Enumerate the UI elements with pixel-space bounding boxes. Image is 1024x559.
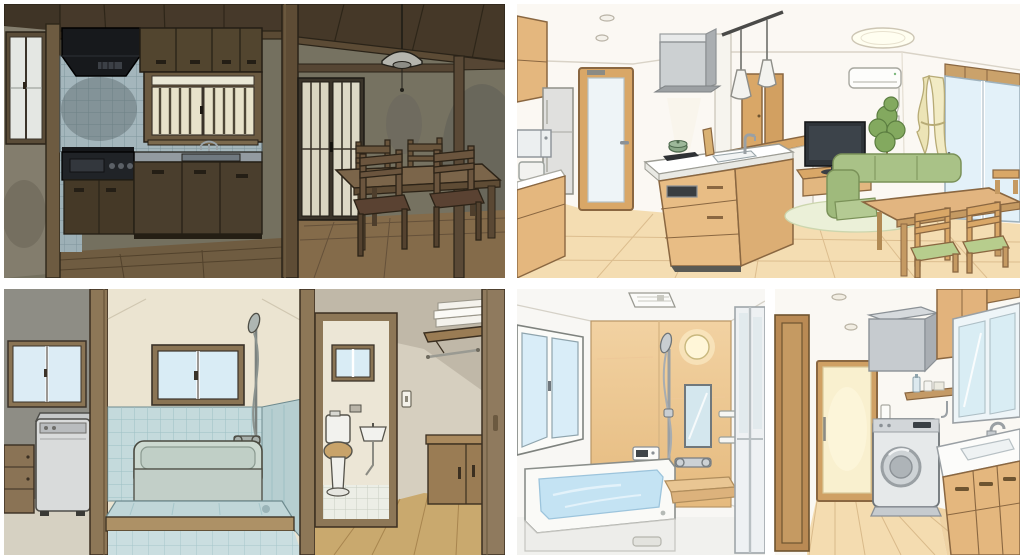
drum-washer [871,419,941,516]
laundry-room [4,289,94,555]
control-panel [633,447,659,460]
door-handle-recess [493,415,498,431]
kitchen-window [144,72,262,145]
panel-modern-ldk [517,4,1020,278]
panel-modern-bathroom [517,289,1020,555]
top-load-washer [36,413,94,516]
bath-window [517,325,583,455]
partition-column [715,34,731,160]
left-exterior-wall [4,26,48,278]
counter-sink [134,152,262,162]
sliding-glass-doors [298,78,364,220]
cabinet-kick [134,234,262,239]
wood-post-left [46,24,60,278]
mixer-valve [675,458,711,467]
glass-door [735,307,765,553]
frosted-door [817,361,877,501]
bathtub [134,441,262,501]
small-window [6,32,46,144]
vent-fan [629,293,675,307]
laundry-window [8,341,86,407]
downlight [600,15,614,21]
laundry-vanity-room [775,289,1020,555]
laundry-cabinet [4,445,34,513]
light-switch [881,405,890,420]
sub-panel-divider [765,289,775,555]
vanity-cabinets [943,461,1020,555]
door-closer [587,70,605,75]
bath-door-frame [90,289,108,555]
slide-bar-knob [664,409,673,417]
island-kick [671,266,741,272]
step-front [106,517,294,531]
toilet-room [315,313,397,527]
light-switch [402,391,411,407]
paper-holder [350,405,361,412]
fluorescent-light [152,76,254,85]
door-handle [620,141,629,145]
range-hood [62,28,140,76]
tile-smudge [61,77,137,141]
pot [669,141,687,153]
frosted-door [579,68,633,210]
downlight [845,324,857,330]
bathroom-center [106,289,302,555]
tub-drain-cap [661,511,666,516]
bath-window [152,345,244,405]
toilet-window [332,345,374,381]
panel-old-bathroom [4,289,505,555]
round-wall-light [685,335,709,359]
grill-slot [667,186,697,197]
panel-old-kitchen-dining [4,4,505,278]
upper-cabinets [140,28,262,72]
open-door-frame [775,315,809,551]
bath-drain [262,505,270,513]
toilet-door-frame-left [300,289,315,555]
downlight [596,35,608,41]
door-glow [827,387,867,471]
sliding-door [482,289,505,555]
floor-drain [633,537,661,546]
downlight [832,294,846,300]
microwave [517,130,551,157]
four-panel-illustration [0,0,1024,559]
gas-stove [62,147,134,234]
mirror [685,385,711,447]
lower-cabinets [134,162,262,239]
washer-pedestal [871,507,941,516]
mirror-cabinet [953,303,1020,423]
island-front [659,169,741,266]
